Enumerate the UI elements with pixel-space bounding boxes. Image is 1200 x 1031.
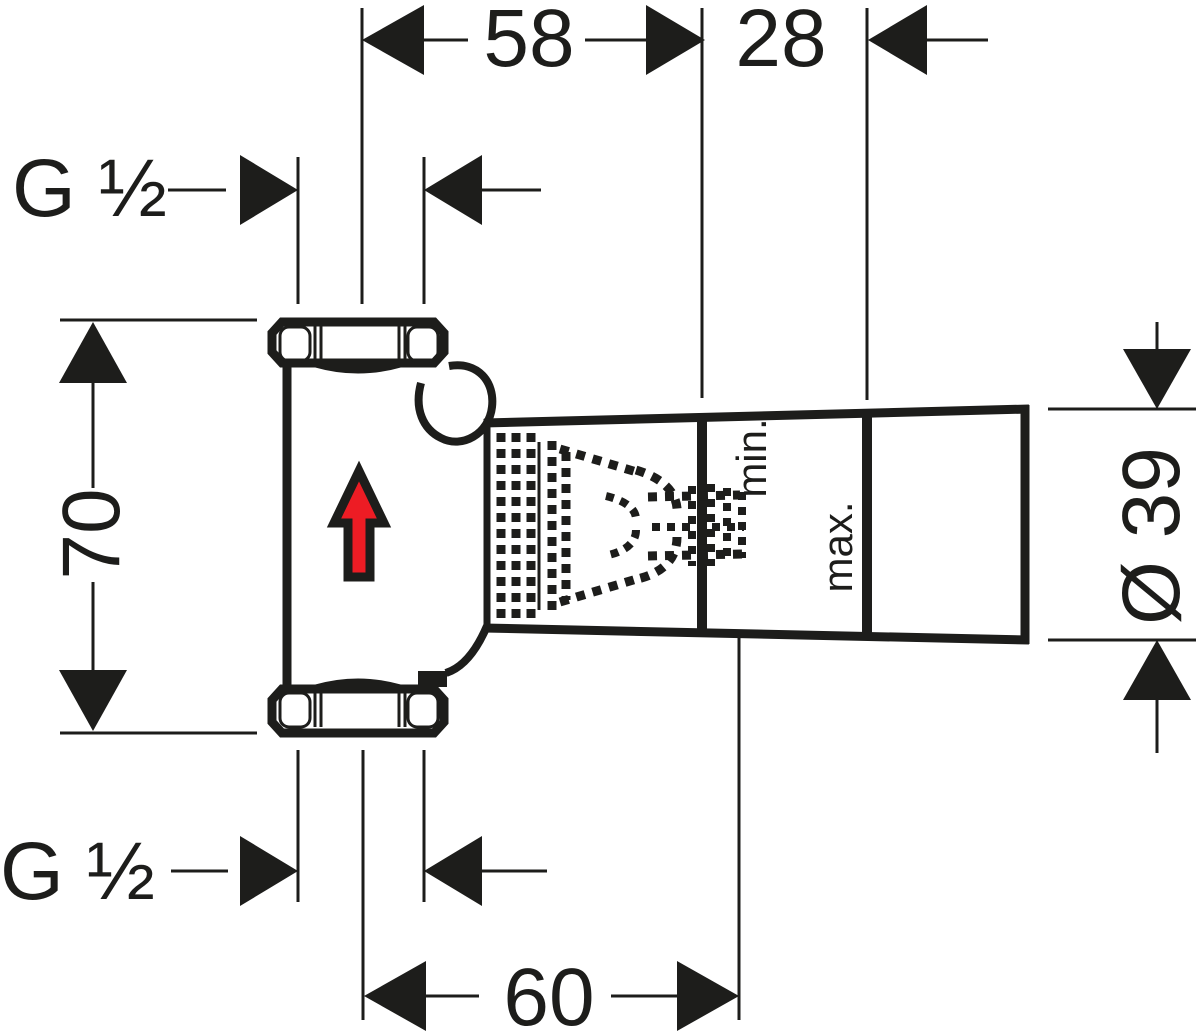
arrow-60-left [364,961,426,1031]
dim-label-60: 60 [503,957,594,1031]
arrow-thread-top-right [424,155,482,225]
thread-label-bottom: G ½ [0,831,155,913]
arrow-thread-bottom-right [424,836,482,906]
arrow-28-right [868,5,927,75]
dim-label-58: 58 [483,0,574,80]
flow-direction-arrow-icon [334,471,384,577]
bonnet-circle [419,365,493,441]
dim-label-dia-39: Ø 39 [1111,447,1193,625]
drawing-linework [0,0,1200,1031]
arrow-dia39-up [1123,640,1191,700]
thread-label-top: G ½ [12,148,167,230]
technical-drawing: 58 28 G ½ 70 Ø 39 min. max. G ½ 60 [0,0,1200,1031]
annotation-min: min. [731,418,773,497]
arrow-58-right [646,5,705,75]
arrow-58-left [362,5,424,75]
arrow-70-up [59,322,127,383]
dim-label-70: 70 [51,488,133,579]
hex-nut-bottom [272,683,444,733]
annotation-max: max. [817,501,859,592]
arrow-thread-bottom-left [240,836,298,906]
dim-label-28: 28 [735,0,826,80]
arrow-60-right [677,961,739,1031]
arrow-thread-top-left [240,155,298,225]
arrow-dia39-down [1123,349,1191,409]
hex-nut-top [272,322,444,369]
lower-transition-curve [446,626,487,673]
arrow-70-down [59,670,127,731]
